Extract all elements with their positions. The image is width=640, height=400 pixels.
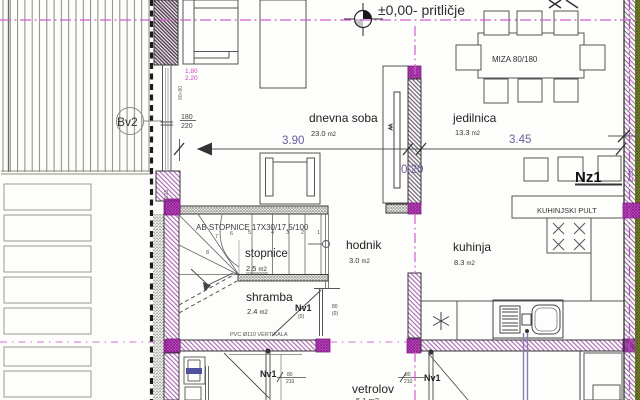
svg-text:80: 80 bbox=[405, 372, 411, 378]
svg-text:2.20: 2.20 bbox=[628, 168, 635, 182]
svg-text:1: 1 bbox=[317, 230, 320, 236]
svg-text:vetrolov: vetrolov bbox=[352, 382, 394, 396]
svg-text:Nv1: Nv1 bbox=[295, 303, 312, 313]
svg-text:shramba: shramba bbox=[246, 290, 293, 304]
svg-text:2.20: 2.20 bbox=[185, 75, 198, 82]
svg-text:0.20: 0.20 bbox=[401, 164, 423, 176]
svg-text:210: 210 bbox=[404, 379, 413, 385]
svg-text:8: 8 bbox=[206, 250, 209, 256]
svg-text:hodnik: hodnik bbox=[346, 238, 382, 252]
svg-text:(0): (0) bbox=[298, 314, 304, 320]
svg-text:80: 80 bbox=[287, 372, 293, 378]
svg-text:3.45: 3.45 bbox=[509, 134, 531, 146]
svg-text:Bv2: Bv2 bbox=[117, 115, 138, 129]
svg-text:3.90: 3.90 bbox=[282, 135, 304, 147]
svg-text:AB STOPNICE 17X30/17,5/100: AB STOPNICE 17X30/17,5/100 bbox=[196, 223, 309, 232]
svg-text:Nz1: Nz1 bbox=[575, 169, 602, 186]
svg-text:kuhinja: kuhinja bbox=[453, 240, 491, 254]
svg-text:Nv1: Nv1 bbox=[260, 369, 277, 379]
svg-text:7: 7 bbox=[215, 234, 218, 240]
svg-text:(0): (0) bbox=[332, 311, 338, 317]
svg-text:AA: AA bbox=[388, 124, 393, 130]
svg-text:±0,00- pritličje: ±0,00- pritličje bbox=[378, 2, 465, 18]
svg-text:5.1 m2: 5.1 m2 bbox=[356, 396, 379, 400]
svg-text:dnevna soba: dnevna soba bbox=[309, 111, 378, 125]
svg-text:jedilnica: jedilnica bbox=[452, 111, 497, 125]
svg-text:80: 80 bbox=[332, 304, 338, 310]
svg-text:210: 210 bbox=[286, 379, 295, 385]
svg-text:180: 180 bbox=[181, 114, 193, 121]
svg-text:KUHINJSKI PULT: KUHINJSKI PULT bbox=[537, 206, 597, 215]
svg-text:stopnice: stopnice bbox=[245, 248, 288, 260]
svg-text:Nv1: Nv1 bbox=[424, 373, 441, 383]
svg-text:MIZA 80/180: MIZA 80/180 bbox=[492, 55, 538, 64]
svg-text:1.80: 1.80 bbox=[185, 68, 198, 75]
svg-text:90+80: 90+80 bbox=[178, 86, 184, 100]
svg-text:220: 220 bbox=[181, 123, 193, 130]
svg-text:PVC Ø110 VERTIKALA: PVC Ø110 VERTIKALA bbox=[230, 332, 288, 338]
